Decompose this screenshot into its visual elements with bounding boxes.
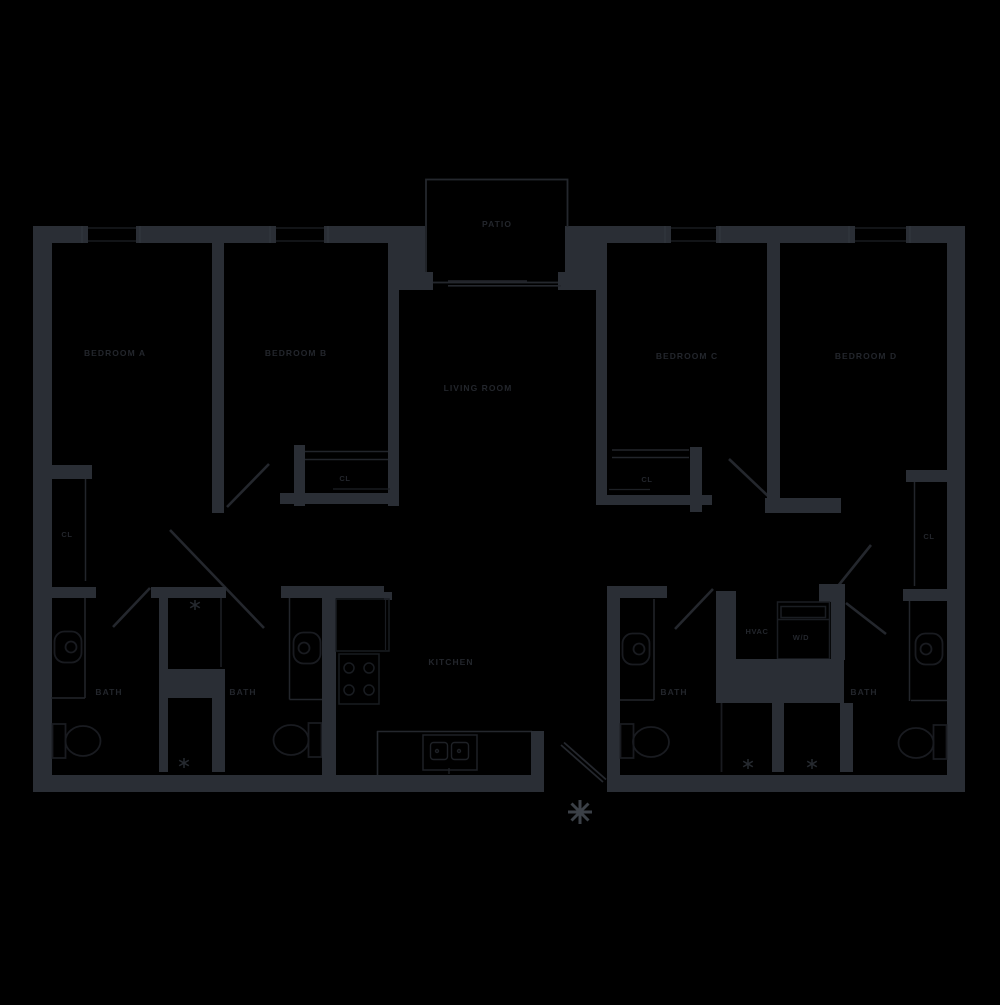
svg-text:KITCHEN: KITCHEN (428, 657, 473, 667)
svg-text:BEDROOM C: BEDROOM C (656, 351, 718, 361)
svg-text:BEDROOM B: BEDROOM B (265, 348, 327, 358)
svg-text:BATH: BATH (850, 687, 877, 697)
svg-text:CL: CL (923, 532, 934, 541)
svg-text:HVAC: HVAC (745, 627, 768, 636)
svg-text:BEDROOM A: BEDROOM A (84, 348, 146, 358)
svg-text:BATH: BATH (229, 687, 256, 697)
svg-text:PATIO: PATIO (482, 219, 512, 229)
svg-text:BATH: BATH (660, 687, 687, 697)
svg-text:CL: CL (339, 474, 350, 483)
svg-text:CL: CL (61, 530, 72, 539)
svg-text:BATH: BATH (95, 687, 122, 697)
svg-text:BEDROOM D: BEDROOM D (835, 351, 897, 361)
svg-text:CL: CL (641, 475, 652, 484)
svg-text:LIVING ROOM: LIVING ROOM (444, 383, 513, 393)
svg-text:W/D: W/D (793, 633, 809, 642)
